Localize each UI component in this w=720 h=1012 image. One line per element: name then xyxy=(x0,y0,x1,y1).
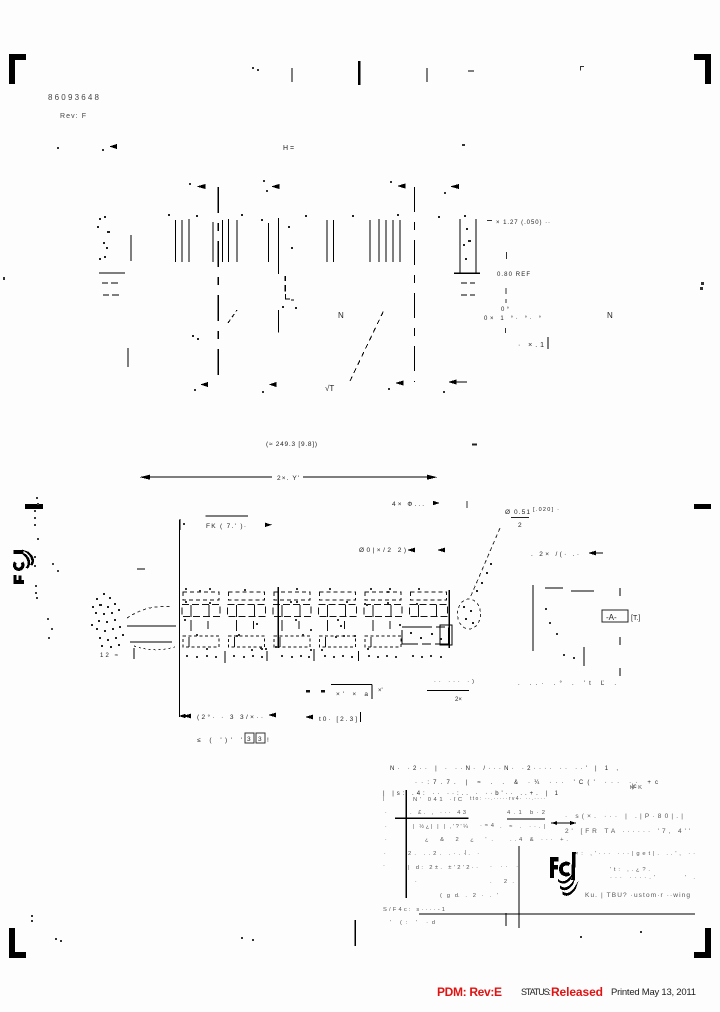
svg-text:-A-: -A- xyxy=(606,613,617,622)
svg-text:t0· [2.3]: t0· [2.3] xyxy=(319,716,357,723)
svg-text:STATUS:: STATUS: xyxy=(521,987,551,997)
svg-text:Released: Released xyxy=(551,985,603,999)
svg-text:√T: √T xyxy=(325,384,334,393)
svg-text:× 1.27 (.050) ··: × 1.27 (.050) ·· xyxy=(496,220,550,226)
svg-text:(2°· · 3 3/×··: (2°· · 3 3/×·· xyxy=(197,713,263,721)
svg-text:N: N xyxy=(338,311,344,320)
svg-text:≤ ( ')' ': ≤ ( ')' ' xyxy=(197,737,242,744)
svg-text:[T.]: [T.] xyxy=(631,615,640,622)
svg-text:Ku. | TBU? ·ustom·r ··wing: Ku. | TBU? ·ustom·r ··wing xyxy=(585,892,690,899)
svg-text:×': ×' xyxy=(378,688,383,694)
svg-text:N: N xyxy=(607,311,613,320)
svg-text:3: 3 xyxy=(258,736,262,743)
svg-text:|: | xyxy=(383,796,385,802)
svg-text:86093648: 86093648 xyxy=(48,93,100,102)
svg-text:!: ! xyxy=(267,737,269,744)
svg-text:2×. Y': 2×. Y' xyxy=(277,475,299,482)
svg-text:FK ( 7.' )·: FK ( 7.' )· xyxy=(206,523,246,530)
svg-text:3: 3 xyxy=(247,736,251,743)
svg-text:(≈ 249.3 [9.8]): (≈ 249.3 [9.8]) xyxy=(266,441,317,448)
svg-text:2: 2 xyxy=(518,522,522,529)
svg-text:·· ··· ·): ·· ··· ·) xyxy=(434,679,474,685)
svg-text:·: · xyxy=(383,863,385,869)
svg-text:Ø0|×/2 2): Ø0|×/2 2) xyxy=(359,547,406,554)
svg-text:H =: H = xyxy=(283,145,294,152)
svg-text:Printed May 13, 2011: Printed May 13, 2011 xyxy=(611,987,696,998)
svg-text:2×: 2× xyxy=(455,697,462,703)
svg-text:PDM: Rev:E: PDM: Rev:E xyxy=(437,985,502,999)
svg-text:| ½¿| | | ,'?'¼: | ½¿| | | ,'?'¼ xyxy=(413,823,468,830)
svg-text:4× Ф...: 4× Ф... xyxy=(392,501,424,508)
svg-text:Rev: F: Rev: F xyxy=(60,113,86,120)
